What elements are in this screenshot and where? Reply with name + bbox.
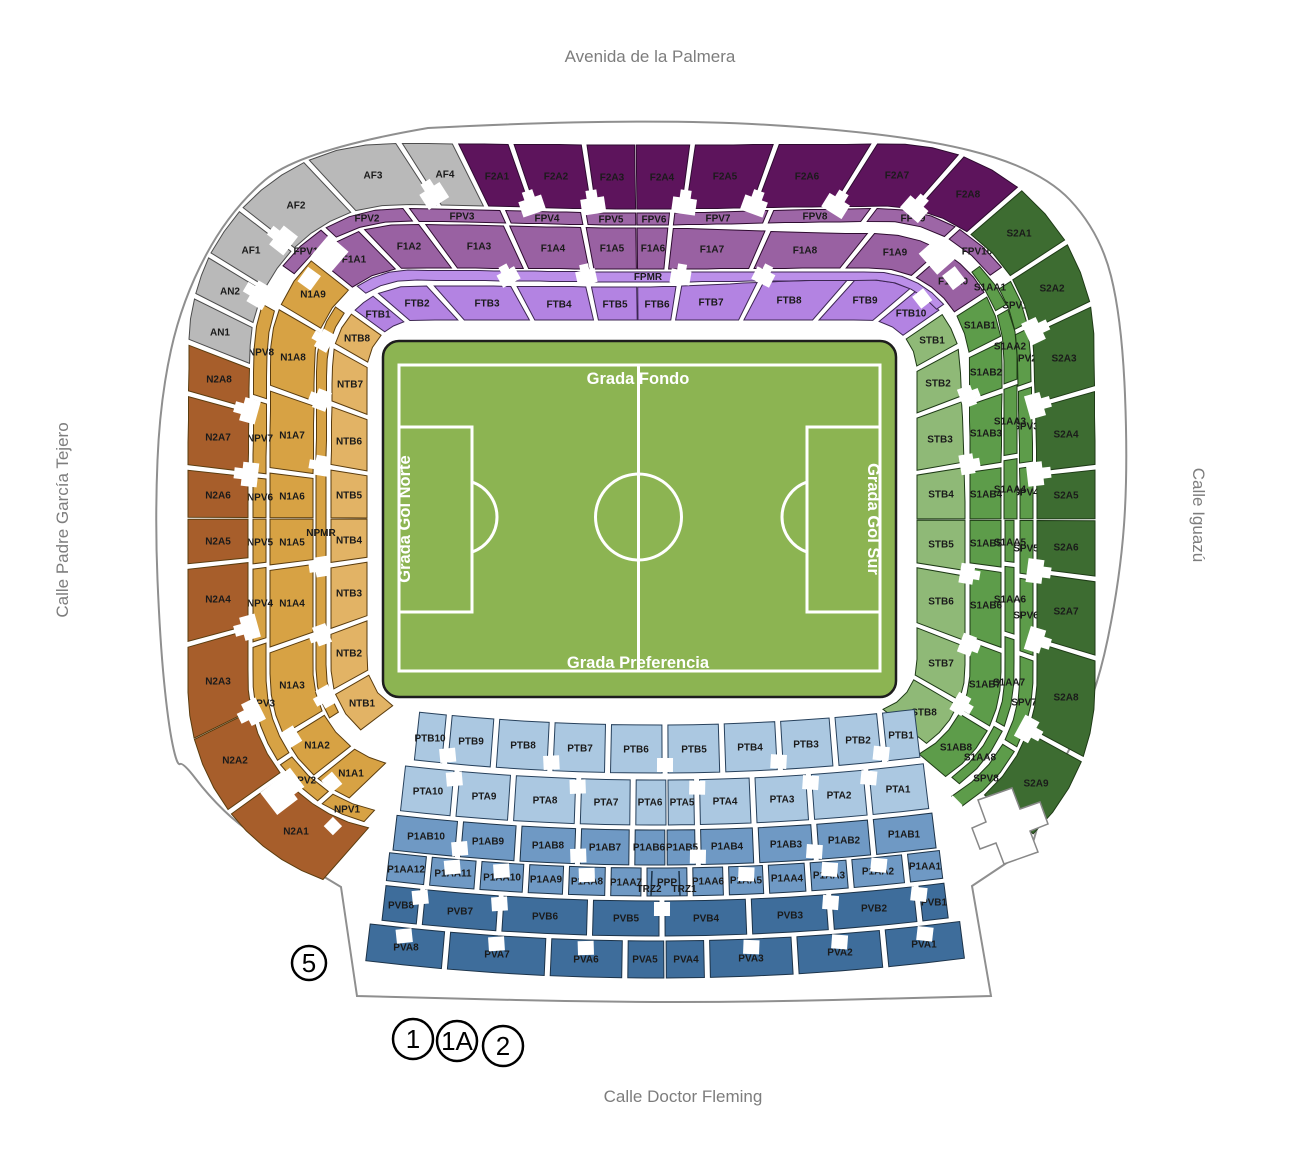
svg-text:N2A8: N2A8 xyxy=(206,375,232,386)
svg-text:S1AA2: S1AA2 xyxy=(994,342,1027,353)
svg-text:FPV7: FPV7 xyxy=(705,214,730,225)
svg-text:NPV5: NPV5 xyxy=(247,538,274,549)
svg-text:S1AA1: S1AA1 xyxy=(974,283,1007,294)
svg-text:F1A9: F1A9 xyxy=(883,248,908,259)
svg-text:NTB7: NTB7 xyxy=(337,380,364,391)
svg-text:FPV6: FPV6 xyxy=(641,215,666,226)
svg-text:S1AB1: S1AB1 xyxy=(964,321,997,332)
svg-text:PVB6: PVB6 xyxy=(532,912,559,923)
svg-text:PTA6: PTA6 xyxy=(638,798,663,809)
svg-text:PTA8: PTA8 xyxy=(533,796,558,807)
svg-text:1: 1 xyxy=(406,1024,420,1054)
svg-text:1A: 1A xyxy=(441,1026,473,1056)
svg-text:F2A8: F2A8 xyxy=(956,190,981,201)
svg-text:PVB8: PVB8 xyxy=(388,901,415,912)
svg-text:NPV7: NPV7 xyxy=(247,434,274,445)
svg-text:AN1: AN1 xyxy=(210,328,230,339)
svg-text:NTB5: NTB5 xyxy=(336,491,363,502)
svg-text:PVA8: PVA8 xyxy=(393,943,419,954)
svg-text:NTB3: NTB3 xyxy=(336,589,363,600)
svg-text:P1AB7: P1AB7 xyxy=(589,843,622,854)
svg-text:P1AB2: P1AB2 xyxy=(828,836,861,847)
svg-text:FPV4: FPV4 xyxy=(534,214,559,225)
svg-text:FPV2: FPV2 xyxy=(354,214,379,225)
svg-text:PTB10: PTB10 xyxy=(414,734,446,745)
svg-text:Calle Doctor Fleming: Calle Doctor Fleming xyxy=(604,1087,763,1106)
svg-text:N2A5: N2A5 xyxy=(205,537,231,548)
svg-text:Grada Fondo: Grada Fondo xyxy=(587,370,690,388)
svg-text:S2A8: S2A8 xyxy=(1053,693,1078,704)
svg-text:AN2: AN2 xyxy=(220,287,240,298)
svg-text:N1A8: N1A8 xyxy=(280,353,306,364)
svg-text:P1AB10: P1AB10 xyxy=(407,832,445,843)
svg-text:PTA7: PTA7 xyxy=(594,798,619,809)
svg-text:PVA5: PVA5 xyxy=(632,955,658,966)
svg-text:S2A3: S2A3 xyxy=(1051,354,1076,365)
svg-text:PTB4: PTB4 xyxy=(737,743,763,754)
svg-text:PTB7: PTB7 xyxy=(567,744,593,755)
svg-text:PVA7: PVA7 xyxy=(484,950,510,961)
svg-text:S1AA3: S1AA3 xyxy=(994,417,1027,428)
svg-text:AF4: AF4 xyxy=(436,170,455,181)
svg-text:N1A5: N1A5 xyxy=(279,538,305,549)
svg-text:SPV8: SPV8 xyxy=(973,774,999,785)
svg-text:STB7: STB7 xyxy=(928,659,954,670)
svg-text:FTB9: FTB9 xyxy=(853,296,878,307)
svg-text:PVA1: PVA1 xyxy=(911,940,937,951)
svg-text:FPMR: FPMR xyxy=(634,272,663,283)
svg-text:N2A1: N2A1 xyxy=(283,827,309,838)
svg-text:TRZ1: TRZ1 xyxy=(672,884,697,895)
svg-text:P1AA6: P1AA6 xyxy=(692,877,725,888)
svg-text:SPV7: SPV7 xyxy=(1011,698,1037,709)
svg-text:N1A9: N1A9 xyxy=(300,290,326,301)
svg-text:NTB6: NTB6 xyxy=(336,437,363,448)
svg-text:PTA2: PTA2 xyxy=(827,791,852,802)
svg-text:NTB1: NTB1 xyxy=(349,699,376,710)
svg-text:AF2: AF2 xyxy=(287,201,306,212)
svg-text:PTA9: PTA9 xyxy=(472,792,497,803)
svg-text:NPV6: NPV6 xyxy=(247,493,274,504)
svg-text:F2A2: F2A2 xyxy=(544,172,569,183)
svg-text:S2A5: S2A5 xyxy=(1053,491,1078,502)
svg-text:N2A7: N2A7 xyxy=(205,433,231,444)
svg-text:AF3: AF3 xyxy=(364,171,383,182)
svg-text:PTB2: PTB2 xyxy=(845,736,871,747)
svg-text:F2A6: F2A6 xyxy=(795,172,820,183)
svg-text:F1A3: F1A3 xyxy=(467,242,492,253)
svg-text:PVB4: PVB4 xyxy=(693,914,720,925)
svg-text:NPV1: NPV1 xyxy=(334,805,361,816)
svg-text:FTB2: FTB2 xyxy=(405,299,430,310)
svg-text:F2A7: F2A7 xyxy=(885,171,910,182)
svg-text:PTA4: PTA4 xyxy=(713,797,738,808)
svg-text:F1A6: F1A6 xyxy=(641,244,666,255)
svg-text:NPV8: NPV8 xyxy=(248,348,275,359)
svg-text:FTB10: FTB10 xyxy=(896,309,927,320)
svg-text:S2A2: S2A2 xyxy=(1039,284,1064,295)
svg-text:PTB8: PTB8 xyxy=(510,741,536,752)
svg-text:PTB1: PTB1 xyxy=(888,731,914,742)
svg-text:S1AB2: S1AB2 xyxy=(970,368,1003,379)
svg-text:SPV6: SPV6 xyxy=(1013,611,1039,622)
svg-text:S2A1: S2A1 xyxy=(1006,229,1031,240)
svg-text:S1AB3: S1AB3 xyxy=(970,429,1003,440)
svg-text:N2A6: N2A6 xyxy=(205,491,231,502)
svg-text:NPMR: NPMR xyxy=(306,528,336,539)
svg-text:P1AB9: P1AB9 xyxy=(472,837,505,848)
svg-text:Avenida de la Palmera: Avenida de la Palmera xyxy=(565,47,736,66)
svg-text:N1A2: N1A2 xyxy=(304,741,330,752)
svg-text:S2A6: S2A6 xyxy=(1053,543,1078,554)
svg-text:FTB7: FTB7 xyxy=(699,298,724,309)
svg-text:P1AA4: P1AA4 xyxy=(771,874,804,885)
svg-text:NPV4: NPV4 xyxy=(247,599,274,610)
svg-text:5: 5 xyxy=(302,948,316,978)
svg-text:AF1: AF1 xyxy=(242,246,261,257)
svg-text:P1AB4: P1AB4 xyxy=(711,842,744,853)
svg-text:FTB4: FTB4 xyxy=(547,300,572,311)
svg-text:2: 2 xyxy=(496,1031,510,1061)
svg-text:F2A1: F2A1 xyxy=(485,172,510,183)
svg-text:S1AA8: S1AA8 xyxy=(964,753,997,764)
svg-text:P1AB1: P1AB1 xyxy=(888,830,921,841)
svg-text:PVB3: PVB3 xyxy=(777,911,804,922)
svg-text:PVA6: PVA6 xyxy=(573,955,599,966)
svg-text:PTB3: PTB3 xyxy=(793,740,819,751)
svg-text:STB1: STB1 xyxy=(919,336,945,347)
svg-text:Grada Gol Sur: Grada Gol Sur xyxy=(864,463,882,575)
svg-text:PVA4: PVA4 xyxy=(673,955,699,966)
svg-text:PTA5: PTA5 xyxy=(670,798,695,809)
svg-text:S2A9: S2A9 xyxy=(1023,779,1048,790)
svg-text:Calle Iguazú: Calle Iguazú xyxy=(1189,468,1208,563)
svg-text:PVA2: PVA2 xyxy=(827,948,853,959)
svg-text:Grada Preferencia: Grada Preferencia xyxy=(567,654,710,672)
svg-text:F1A8: F1A8 xyxy=(793,246,818,257)
svg-text:F1A7: F1A7 xyxy=(700,245,725,256)
svg-text:PTA3: PTA3 xyxy=(770,795,795,806)
svg-text:STB5: STB5 xyxy=(928,540,954,551)
svg-text:FPV8: FPV8 xyxy=(802,212,827,223)
svg-text:NTB2: NTB2 xyxy=(336,649,363,660)
svg-text:P1AB6: P1AB6 xyxy=(633,843,666,854)
svg-text:S1AA4: S1AA4 xyxy=(994,485,1027,496)
svg-text:S1AA7: S1AA7 xyxy=(993,678,1026,689)
svg-text:Grada Gol Norte: Grada Gol Norte xyxy=(396,455,414,582)
svg-text:F1A1: F1A1 xyxy=(342,255,367,266)
svg-text:FPV5: FPV5 xyxy=(598,215,623,226)
svg-text:N1A4: N1A4 xyxy=(279,599,305,610)
svg-text:PTB6: PTB6 xyxy=(623,745,649,756)
svg-text:S2A7: S2A7 xyxy=(1053,607,1078,618)
svg-text:F2A5: F2A5 xyxy=(713,172,738,183)
svg-text:FTB1: FTB1 xyxy=(366,310,391,321)
svg-text:P1AA9: P1AA9 xyxy=(530,875,563,886)
svg-text:P1AA1: P1AA1 xyxy=(909,862,942,873)
svg-text:PVA3: PVA3 xyxy=(738,954,764,965)
svg-text:Calle Padre García Tejero: Calle Padre García Tejero xyxy=(53,422,72,617)
svg-text:PTB5: PTB5 xyxy=(681,745,707,756)
svg-text:TRZ2: TRZ2 xyxy=(637,884,662,895)
svg-text:STB2: STB2 xyxy=(925,379,951,390)
svg-text:PVB5: PVB5 xyxy=(613,914,640,925)
svg-text:P1AA12: P1AA12 xyxy=(387,865,425,876)
svg-text:N1A7: N1A7 xyxy=(279,431,305,442)
svg-text:N2A4: N2A4 xyxy=(205,595,231,606)
svg-text:FTB6: FTB6 xyxy=(645,300,670,311)
svg-text:N1A3: N1A3 xyxy=(279,681,305,692)
svg-text:STB3: STB3 xyxy=(927,435,953,446)
svg-text:NTB8: NTB8 xyxy=(344,334,371,345)
svg-text:PTB9: PTB9 xyxy=(458,737,484,748)
svg-text:NTB4: NTB4 xyxy=(336,536,363,547)
svg-text:F1A2: F1A2 xyxy=(397,242,422,253)
svg-text:STB6: STB6 xyxy=(928,597,954,608)
svg-text:FTB5: FTB5 xyxy=(603,300,628,311)
svg-text:N1A6: N1A6 xyxy=(279,492,305,503)
svg-text:PTA1: PTA1 xyxy=(886,785,911,796)
svg-text:F2A4: F2A4 xyxy=(650,173,675,184)
svg-text:PVB7: PVB7 xyxy=(447,907,474,918)
svg-text:STB4: STB4 xyxy=(928,490,954,501)
svg-text:N2A2: N2A2 xyxy=(222,756,248,767)
svg-text:FPV3: FPV3 xyxy=(449,212,474,223)
svg-text:S1AA6: S1AA6 xyxy=(994,595,1027,606)
svg-text:F1A4: F1A4 xyxy=(541,244,566,255)
svg-text:P1AB3: P1AB3 xyxy=(770,840,803,851)
svg-text:PVB2: PVB2 xyxy=(861,904,888,915)
svg-text:S2A4: S2A4 xyxy=(1053,430,1078,441)
svg-text:F1A5: F1A5 xyxy=(600,244,625,255)
svg-text:FTB8: FTB8 xyxy=(777,296,802,307)
svg-text:N2A3: N2A3 xyxy=(205,677,231,688)
svg-text:FTB3: FTB3 xyxy=(475,299,500,310)
svg-text:P1AB8: P1AB8 xyxy=(532,841,565,852)
svg-text:F2A3: F2A3 xyxy=(600,173,625,184)
svg-text:N1A1: N1A1 xyxy=(338,769,364,780)
svg-text:S1AA5: S1AA5 xyxy=(994,538,1027,549)
svg-text:PTA10: PTA10 xyxy=(413,787,444,798)
